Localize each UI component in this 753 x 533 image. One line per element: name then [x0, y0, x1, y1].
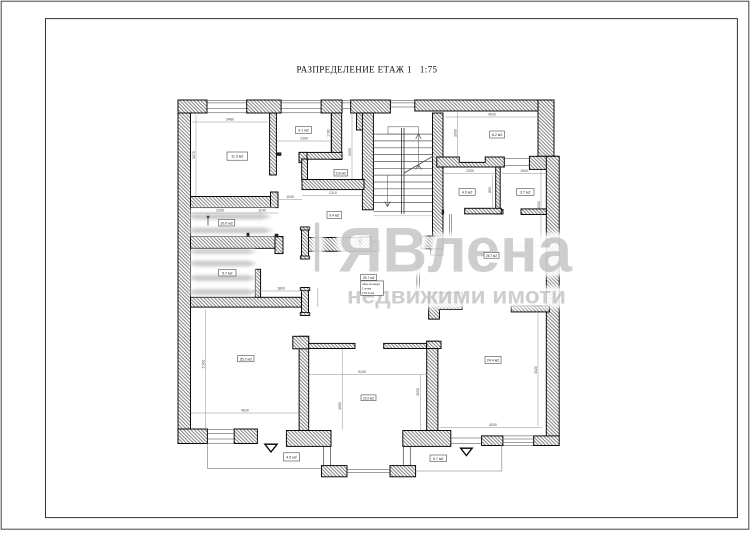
svg-text:2390: 2390 — [300, 137, 308, 141]
svg-text:170.4 м2: 170.4 м2 — [362, 291, 374, 295]
svg-text:1800: 1800 — [277, 287, 285, 291]
svg-text:4000: 4000 — [489, 423, 497, 427]
svg-text:5.300: 5.300 — [201, 360, 205, 369]
svg-text:11.9 м2: 11.9 м2 — [231, 155, 243, 159]
svg-text:22.0 м2: 22.0 м2 — [363, 396, 374, 400]
svg-text:1900: 1900 — [520, 169, 528, 173]
svg-text:3.7 м2: 3.7 м2 — [520, 191, 530, 195]
svg-text:РАЗПРЕДЕЛЕНИЕ ЕТАЖ 1 1:75: РАЗПРЕДЕЛЕНИЕ ЕТАЖ 1 1:75 — [297, 65, 438, 75]
svg-text:3480: 3480 — [226, 118, 234, 122]
svg-text:5.7 м2: 5.7 м2 — [433, 457, 443, 461]
svg-text:1040: 1040 — [286, 195, 294, 199]
svg-text:2300: 2300 — [466, 169, 474, 173]
svg-text:25.7 м2: 25.7 м2 — [363, 276, 375, 280]
svg-text:3.8 м2: 3.8 м2 — [335, 171, 345, 175]
svg-text:1140: 1140 — [258, 209, 266, 213]
svg-text:5.7 м2: 5.7 м2 — [222, 271, 232, 275]
svg-text:4.0 м2: 4.0 м2 — [462, 191, 472, 195]
svg-text:2090: 2090 — [348, 148, 352, 156]
svg-text:3050: 3050 — [416, 388, 420, 396]
svg-text:2060: 2060 — [537, 201, 541, 209]
svg-text:8.2 м2: 8.2 м2 — [492, 133, 502, 137]
svg-text:3320: 3320 — [534, 366, 538, 374]
svg-text:общ.площад: общ.площад — [362, 282, 380, 286]
svg-text:9.1 м2: 9.1 м2 — [298, 129, 308, 133]
svg-text:25.2 м2: 25.2 м2 — [240, 357, 252, 361]
svg-text:4020: 4020 — [488, 113, 496, 117]
svg-text:24.4 м2: 24.4 м2 — [487, 359, 499, 363]
svg-text:5100: 5100 — [358, 370, 366, 374]
svg-text:10.0 м2: 10.0 м2 — [220, 221, 232, 225]
svg-text:4630: 4630 — [241, 409, 249, 413]
svg-text:9.4 м2: 9.4 м2 — [329, 214, 339, 218]
svg-text:2290: 2290 — [216, 209, 224, 213]
svg-text:26.7 м2: 26.7 м2 — [486, 254, 497, 258]
svg-text:2060: 2060 — [453, 129, 457, 137]
svg-text:2110: 2110 — [329, 191, 337, 195]
svg-text:850: 850 — [488, 187, 492, 193]
svg-text:1780: 1780 — [326, 129, 330, 137]
svg-text:1 етаж: 1 етаж — [362, 287, 371, 291]
svg-text:4650: 4650 — [338, 402, 342, 410]
svg-text:3470: 3470 — [192, 151, 196, 159]
svg-text:4.5 м2: 4.5 м2 — [286, 456, 296, 460]
